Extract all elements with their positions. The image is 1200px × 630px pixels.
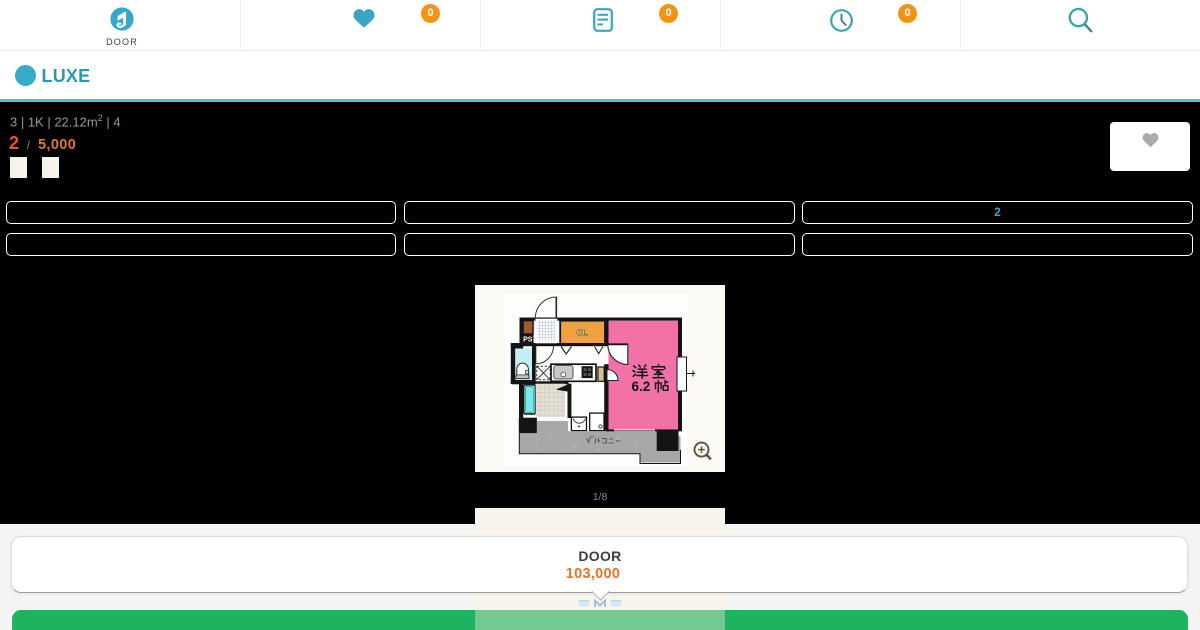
svg-text:6.2: 6.2 [632,379,651,394]
svg-text:PS: PS [523,337,533,344]
svg-text:CL: CL [576,328,587,338]
